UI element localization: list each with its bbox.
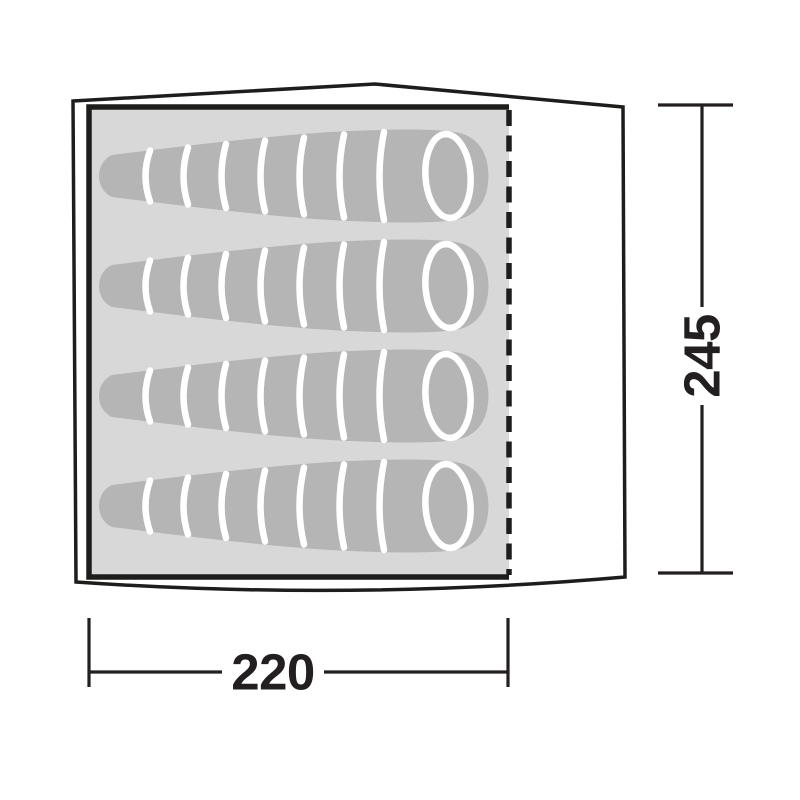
tent-floorplan-diagram: 245 220: [0, 0, 800, 800]
tent-floorplan-page: 245 220: [0, 0, 800, 800]
height-dimension-label: 245: [674, 314, 731, 398]
width-dimension-label: 220: [231, 644, 315, 701]
height-dimension: 245: [658, 105, 733, 573]
width-dimension: 220: [89, 618, 508, 701]
